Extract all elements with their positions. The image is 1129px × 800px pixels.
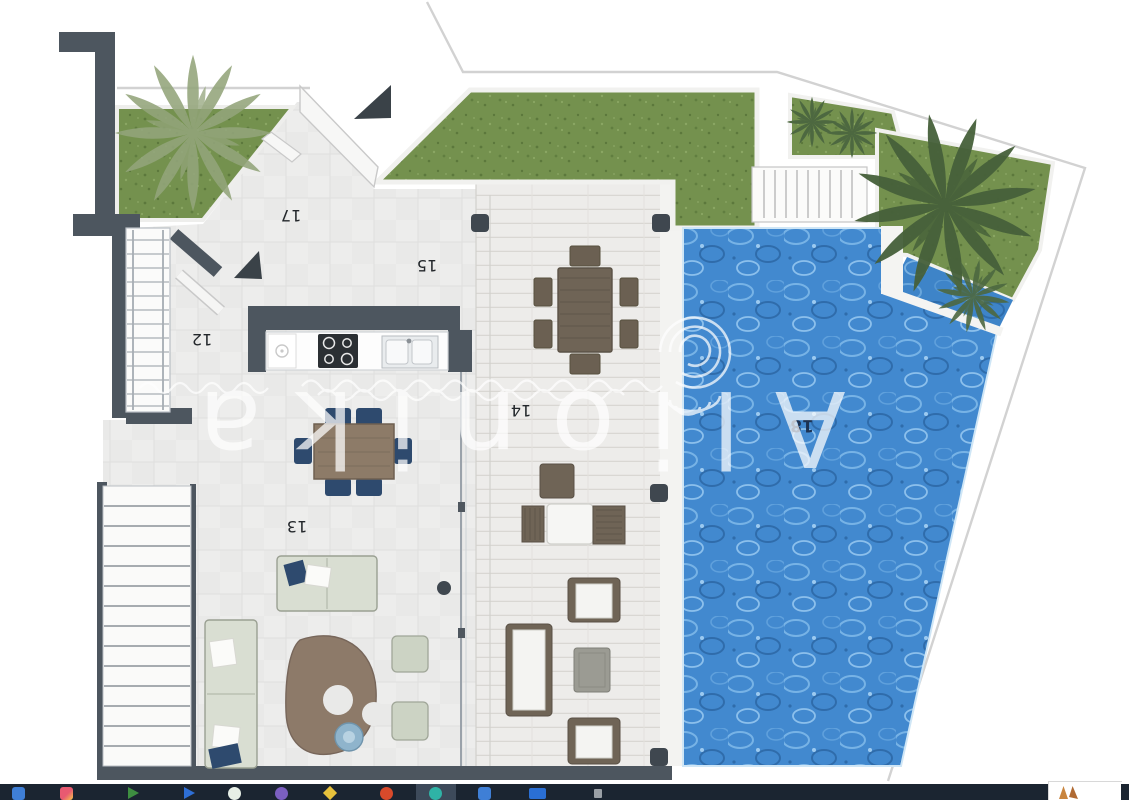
green-play-app-icon[interactable]: [128, 787, 139, 799]
sun-lounger: [522, 504, 625, 544]
sofa-horizontal: [277, 556, 377, 611]
file-explorer-icon[interactable]: [12, 787, 25, 800]
outdoor-armchair-1: [568, 578, 620, 622]
cooktop-icon: [318, 334, 358, 368]
sofa-vertical: [205, 620, 257, 769]
column: [437, 581, 451, 595]
steps: [752, 167, 867, 222]
taskbar-right-edge: [1121, 784, 1129, 800]
room-label-12: 12: [192, 330, 212, 349]
outdoor-armchair-2: [568, 718, 620, 764]
screenshot-stage: 12 13 14 15 17 18 Alionika: [0, 0, 1129, 800]
tray-logo-icon: [1059, 786, 1068, 799]
room-label-17: 17: [281, 206, 301, 225]
taskbar: [0, 784, 1129, 800]
gray-app-icon[interactable]: [594, 789, 602, 798]
purple-circle-app-icon[interactable]: [275, 787, 288, 800]
floor-plan: 12 13 14 15 17 18 Alionika: [0, 0, 1129, 784]
blue-arrow-app-icon[interactable]: [184, 787, 195, 799]
light-circle-app-icon[interactable]: [228, 787, 241, 800]
staircase: [103, 486, 191, 766]
yellow-app-icon[interactable]: [323, 786, 337, 800]
blue-rect-app-icon[interactable]: [529, 788, 546, 799]
outdoor-coffee-table: [574, 648, 610, 692]
red-flame-app-icon[interactable]: [380, 787, 393, 800]
left-window: [126, 228, 170, 412]
outdoor-dining-table: [558, 268, 612, 352]
small-appliance-icon: [268, 334, 296, 368]
watermark-text: Alionika: [164, 367, 846, 489]
room-label-13: 13: [287, 517, 307, 536]
teal-circle-app-icon[interactable]: [429, 787, 442, 800]
kitchen-counter: [266, 332, 448, 370]
tray-logo-icon: [1069, 786, 1078, 799]
sink-icon: [382, 336, 438, 368]
taskbar-icons: [0, 784, 1129, 800]
blue-rounded-app-icon[interactable]: [478, 787, 491, 800]
taskbar-tray-panel[interactable]: [1048, 781, 1122, 800]
photos-app-icon[interactable]: [60, 787, 73, 800]
outdoor-sofa: [506, 624, 552, 716]
room-label-15: 15: [417, 256, 437, 275]
